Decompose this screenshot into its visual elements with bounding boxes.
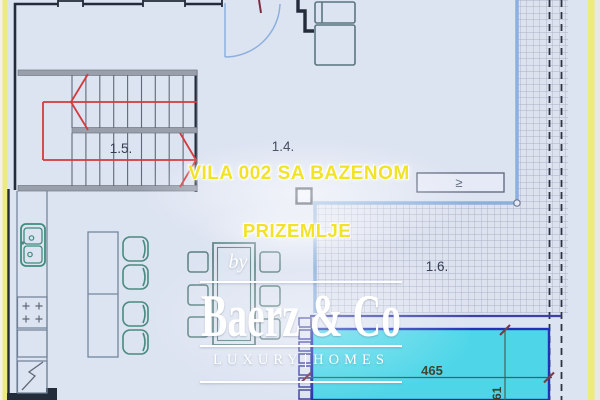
chairs-table-1 <box>123 237 148 354</box>
window-tag-glyph: ≥ <box>455 175 462 190</box>
dining-table-1 <box>88 232 118 357</box>
title-floor: PRIZEMLJE <box>243 220 351 242</box>
window-tag-box: ≥ <box>417 173 504 192</box>
watermark-tagline-left: LUXURY <box>213 352 303 369</box>
appliance-icon <box>18 361 48 393</box>
floor-plan-page: 465 61 1.5. 1.4. 1.6. ≥ VILA 002 SA BAZE… <box>0 0 600 400</box>
label-living: 1.4. <box>272 139 295 154</box>
watermark-tagline-right: HOMES <box>313 352 389 369</box>
cabinet-icon <box>18 330 48 357</box>
wall-bottom-left-corner <box>46 388 57 400</box>
column-marker-square <box>297 189 312 204</box>
sink-icon <box>21 224 45 266</box>
watermark-by: by <box>229 251 248 274</box>
corner-circle-marker <box>514 200 520 206</box>
cooktop-icon <box>18 297 48 328</box>
stair-beam-bottom <box>18 186 197 192</box>
page-edge-left <box>0 0 3 400</box>
page-edge-right <box>595 0 600 400</box>
chair-icon <box>260 252 280 272</box>
door-red-tick <box>259 0 261 13</box>
label-terrace: 1.6. <box>426 259 449 274</box>
watermark-rule-bottom <box>200 381 402 383</box>
watermark-divider <box>305 354 307 368</box>
page-border-left <box>3 0 8 400</box>
door-arc <box>225 4 280 57</box>
watermark-brand: Baerz & Co <box>201 286 401 346</box>
watermark-rule-middle <box>200 345 402 347</box>
page-border-right <box>588 0 595 400</box>
stair-beam-top <box>18 70 197 76</box>
label-stairs: 1.5. <box>110 141 133 156</box>
pool-side-value: 61 <box>490 386 504 400</box>
title-main: VILA 002 SA BAZENOM <box>188 163 409 185</box>
chair-icon <box>188 252 208 272</box>
pool-width-value: 465 <box>421 363 443 378</box>
sofa-icon <box>315 2 355 65</box>
stair-beam-middle <box>72 128 197 134</box>
watermark-tagline: LUXURY HOMES <box>200 352 402 369</box>
staircase <box>18 70 197 191</box>
wall-jog <box>298 0 314 31</box>
entrance-door <box>225 3 280 57</box>
